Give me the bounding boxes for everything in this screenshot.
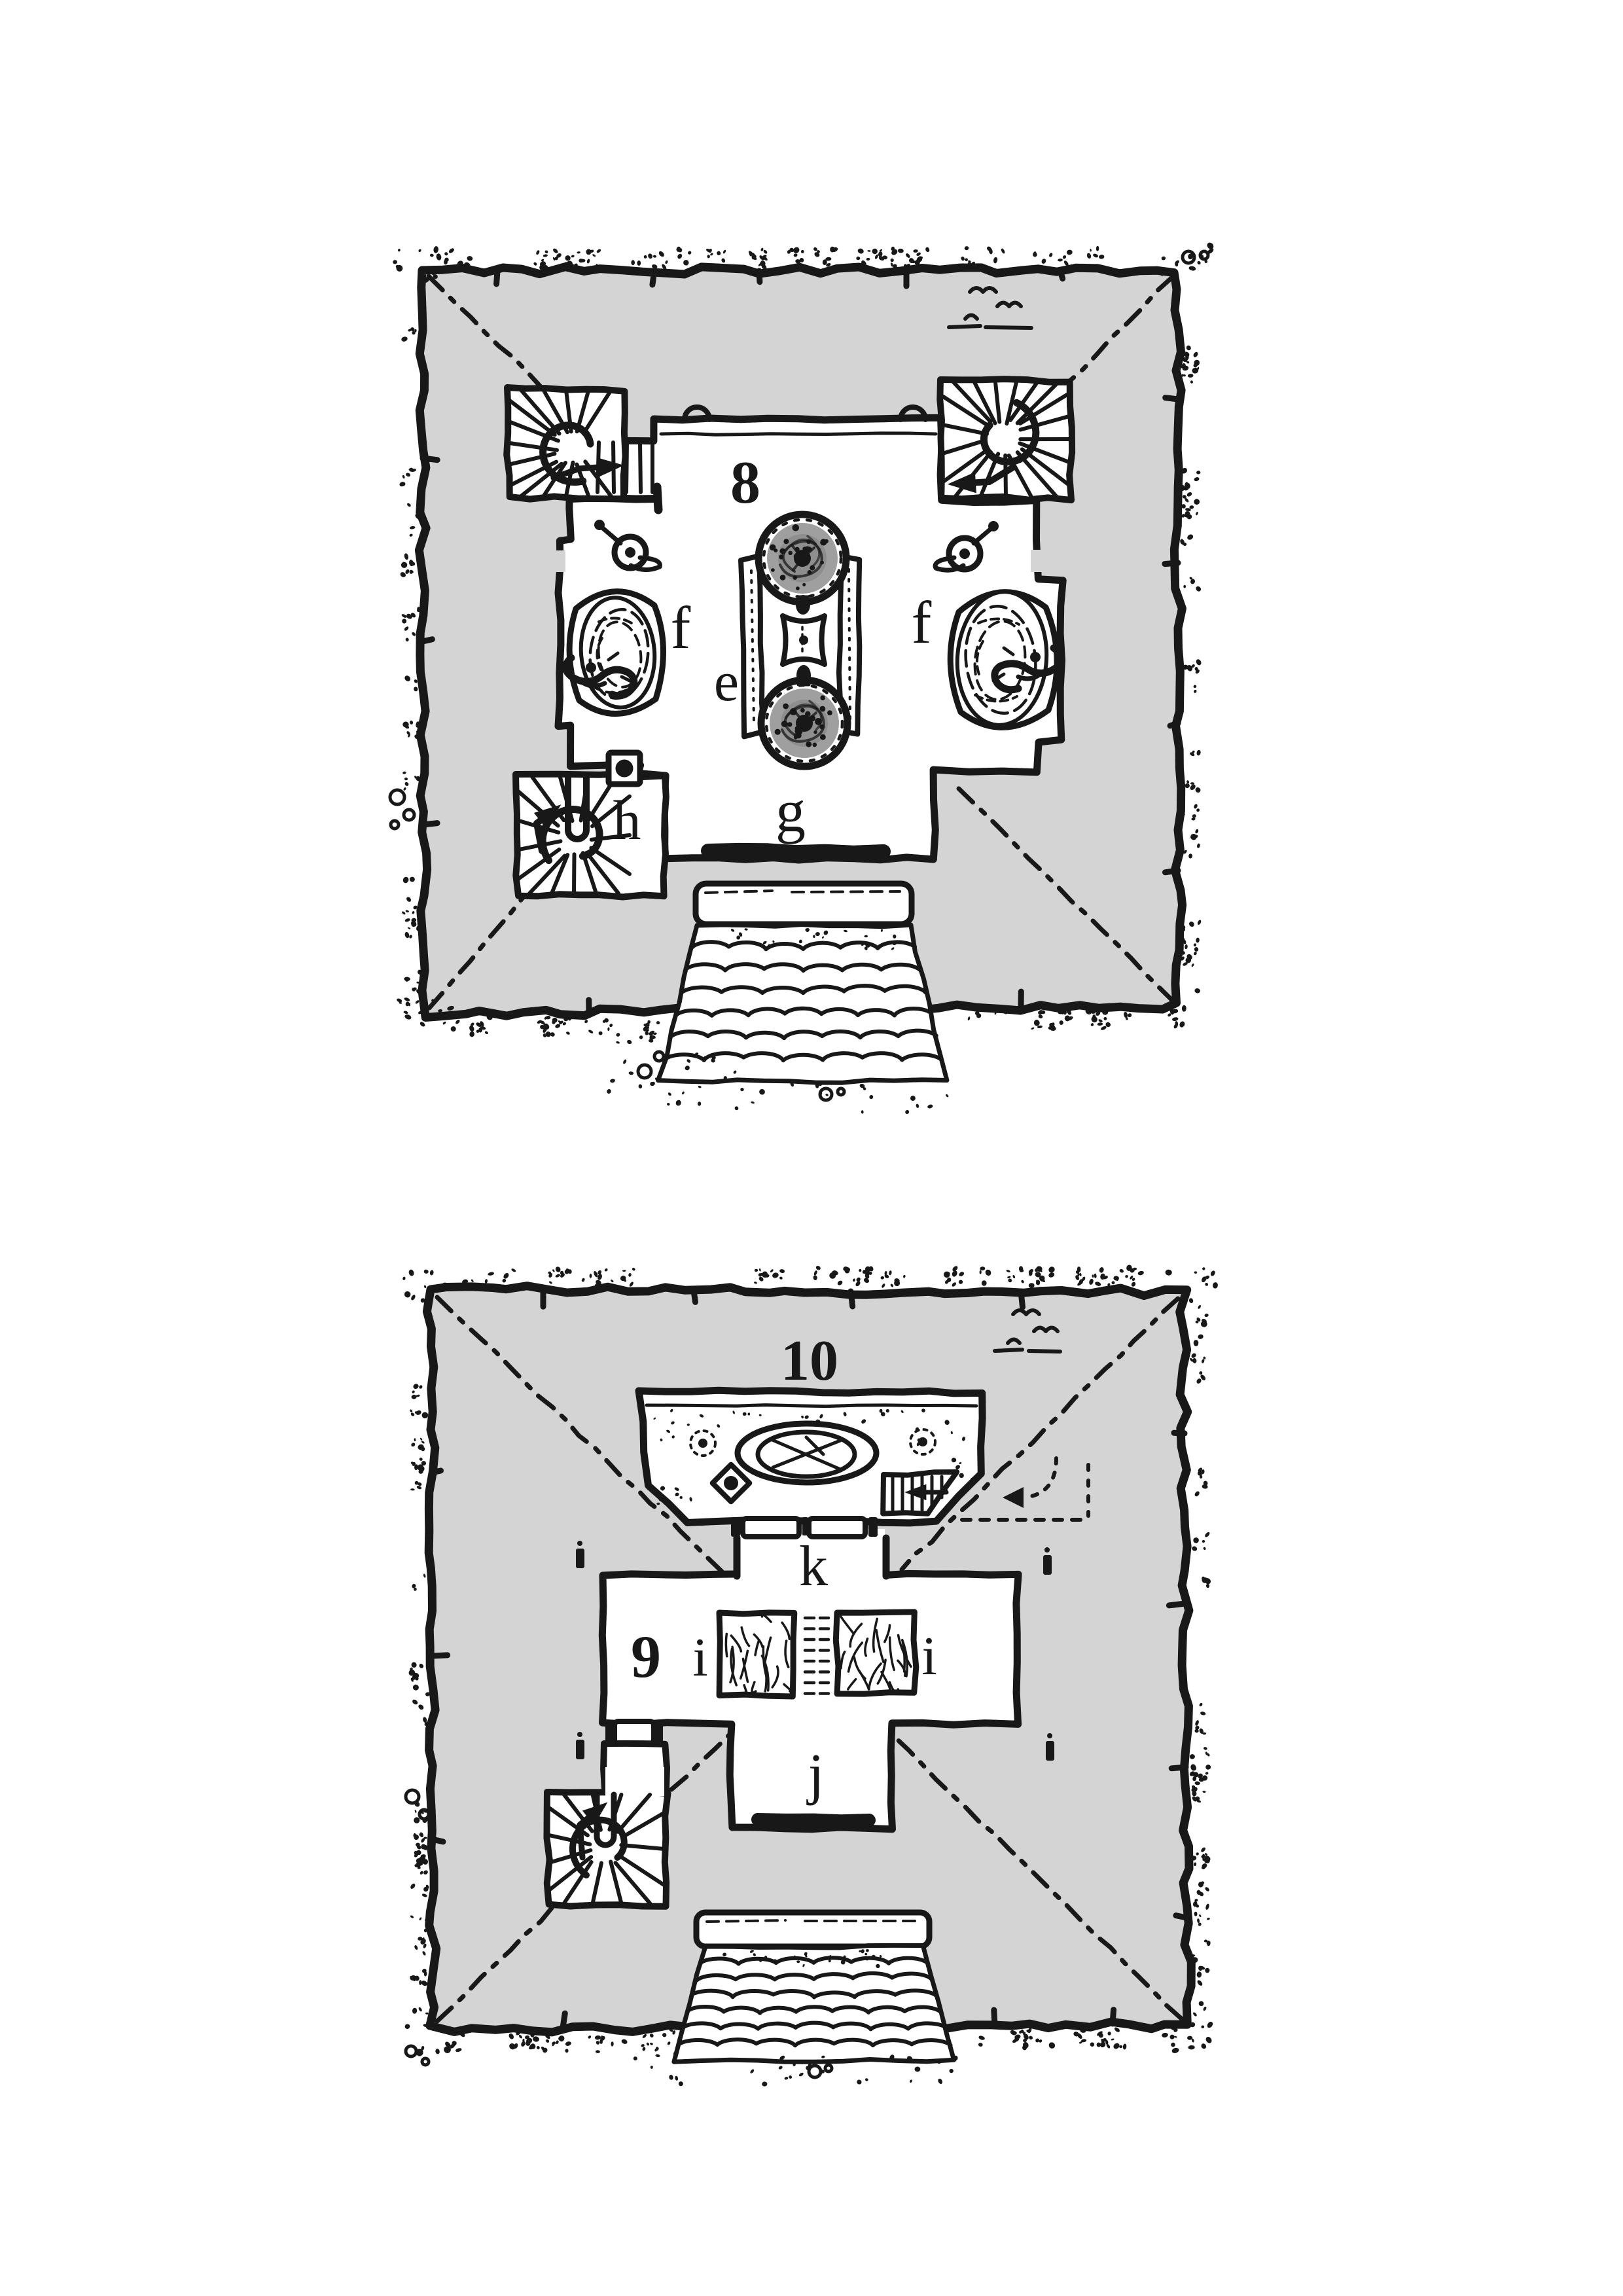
svg-text:f: f: [912, 589, 932, 656]
svg-text:h: h: [613, 789, 641, 852]
svg-text:j: j: [806, 1743, 824, 1806]
svg-text:e: e: [714, 650, 739, 713]
svg-text:i: i: [921, 1626, 936, 1687]
svg-text:i: i: [692, 1627, 707, 1688]
svg-text:9: 9: [631, 1623, 661, 1690]
svg-text:g: g: [776, 778, 806, 844]
svg-text:k: k: [799, 1535, 828, 1598]
svg-text:8: 8: [730, 449, 760, 516]
svg-text:10: 10: [781, 1329, 838, 1393]
svg-text:f: f: [671, 594, 691, 661]
